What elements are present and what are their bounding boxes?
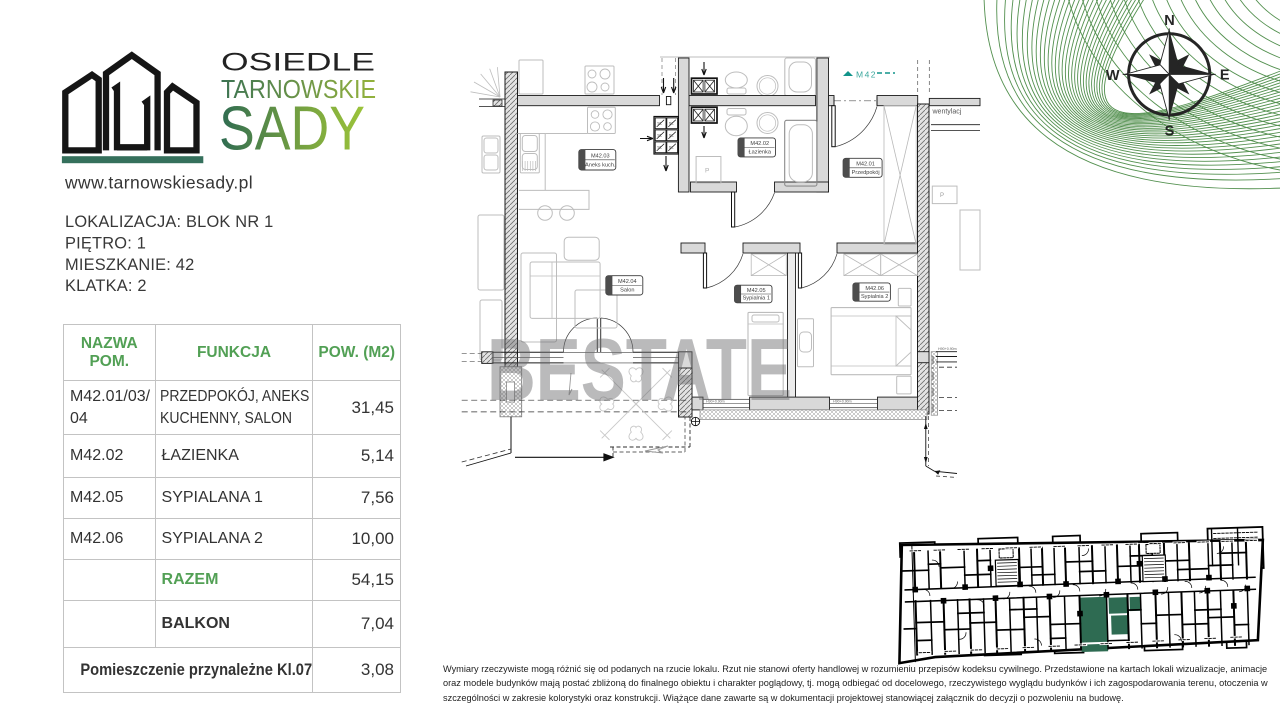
svg-text:SL: SL [657, 144, 663, 149]
svg-text:H90+0.90m: H90+0.90m [833, 400, 852, 404]
svg-text:Łazienka: Łazienka [749, 150, 772, 156]
svg-text:P: P [940, 193, 944, 199]
svg-text:SL: SL [657, 132, 663, 137]
svg-text:E: E [1220, 68, 1230, 84]
svg-text:SL: SL [669, 132, 675, 137]
svg-text:BESTATE: BESTATE [487, 320, 792, 419]
svg-text:Aneks kuch.: Aneks kuch. [585, 163, 616, 169]
svg-text:SL: SL [669, 120, 675, 125]
svg-text:M42.06: M42.06 [865, 286, 884, 292]
svg-text:Sypialnia 1: Sypialnia 1 [743, 295, 770, 301]
svg-text:M42: M42 [856, 70, 877, 80]
svg-text:M42.05: M42.05 [747, 288, 766, 294]
svg-text:SL: SL [669, 144, 675, 149]
svg-text:Przedpokój: Przedpokój [852, 170, 880, 176]
svg-text:wentylacj: wentylacj [932, 109, 962, 116]
svg-text:M42.02: M42.02 [750, 141, 769, 147]
svg-text:W: W [1106, 68, 1120, 84]
svg-text:P: P [705, 168, 709, 175]
svg-text:M42.03: M42.03 [591, 154, 610, 160]
svg-text:M42.01: M42.01 [856, 162, 875, 168]
svg-text:Salon: Salon [620, 288, 634, 294]
svg-text:M42.04: M42.04 [618, 279, 637, 285]
svg-text:S: S [1165, 123, 1175, 139]
svg-text:H90+0.90m: H90+0.90m [938, 347, 957, 351]
svg-text:Sypialnia 2: Sypialnia 2 [861, 294, 888, 300]
svg-text:N: N [1164, 13, 1174, 29]
svg-text:SL: SL [657, 120, 663, 125]
